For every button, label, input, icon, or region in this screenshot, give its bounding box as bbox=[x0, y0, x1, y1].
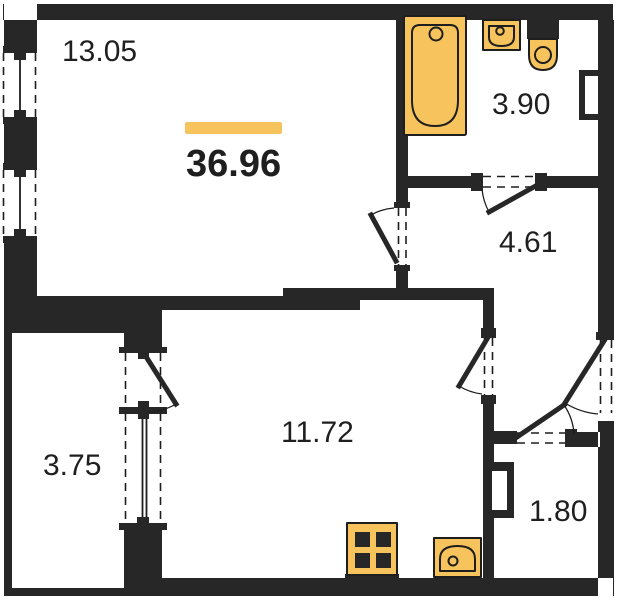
hallway-area-label: 4.61 bbox=[499, 226, 557, 259]
stove-burner bbox=[376, 553, 391, 568]
door-opening-dashes bbox=[485, 338, 493, 395]
storage-wall-niche bbox=[492, 471, 507, 510]
window-living-room-2 bbox=[4, 170, 36, 236]
toilet-tank bbox=[527, 20, 559, 39]
door-leaf bbox=[459, 339, 487, 386]
balcony-door bbox=[126, 353, 177, 412]
washbasin-symbol bbox=[483, 20, 520, 50]
stove-burner bbox=[376, 532, 391, 547]
entry-door bbox=[565, 340, 612, 414]
window-glass-line bbox=[143, 419, 147, 517]
door-leaf bbox=[371, 215, 396, 261]
bathroom-area-label: 3.90 bbox=[492, 88, 550, 121]
door-opening-dashes bbox=[483, 177, 535, 188]
toilet-symbol bbox=[527, 20, 559, 70]
door-leaf bbox=[565, 341, 604, 403]
balcony-area-label: 3.75 bbox=[43, 449, 101, 482]
stove-burner bbox=[355, 553, 370, 568]
door-swing-arc bbox=[482, 189, 489, 212]
door-opening-dashes bbox=[126, 353, 161, 407]
window-balcony bbox=[126, 413, 161, 523]
kitchen-area-label: 11.72 bbox=[281, 416, 354, 449]
floor-plan-page: 36.96 13.05 3.90 4.61 11.72 3.75 1.80 bbox=[0, 0, 617, 600]
window-living-room-1 bbox=[4, 53, 36, 117]
living-room-door bbox=[371, 208, 406, 265]
door-leaf bbox=[517, 405, 564, 437]
door-swing-arc bbox=[371, 208, 394, 215]
door-swing-arc bbox=[459, 386, 482, 394]
living-room-area-label: 13.05 bbox=[62, 35, 137, 68]
bathroom-wall-niche bbox=[585, 76, 598, 114]
floor-plan: 36.96 13.05 3.90 4.61 11.72 3.75 1.80 bbox=[0, 0, 617, 600]
bathtub-symbol bbox=[404, 16, 466, 135]
door-opening-dashes bbox=[601, 340, 612, 413]
stove-symbol bbox=[345, 523, 399, 583]
bathroom-door bbox=[482, 177, 541, 213]
kitchen-door bbox=[459, 338, 493, 395]
kitchen-sink-symbol bbox=[434, 538, 481, 577]
total-area-underline bbox=[185, 122, 282, 134]
door-opening-dashes bbox=[399, 208, 407, 265]
stove-burner bbox=[355, 532, 370, 547]
total-area-label: 36.96 bbox=[186, 143, 281, 185]
door-swing-arc bbox=[565, 403, 598, 414]
storage-area-label: 1.80 bbox=[529, 495, 587, 528]
